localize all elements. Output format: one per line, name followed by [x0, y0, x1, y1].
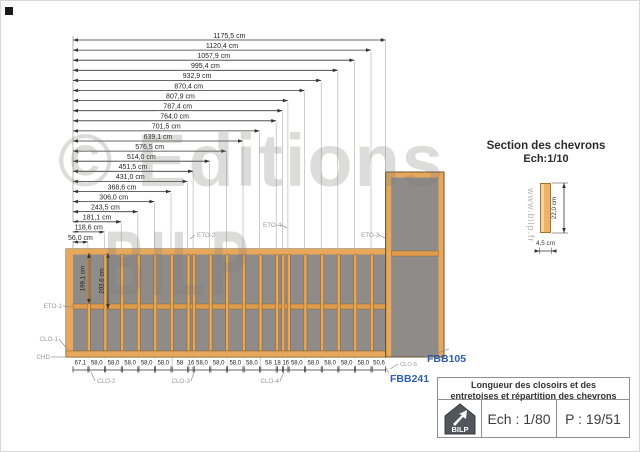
annotation-clo1: CLO-1 — [39, 336, 58, 343]
top-dimension-label: 514,0 cm — [127, 154, 156, 161]
top-dimension-label: 701,5 cm — [152, 124, 181, 131]
drawing-title-line1: Longueur des closoirs et des — [438, 380, 629, 391]
top-dimension-label: 56,0 cm — [68, 235, 93, 242]
top-dimension-label: 870,4 cm — [174, 83, 203, 90]
annotation-fbb241: FBB241 — [390, 373, 429, 385]
drawing-scale: Ech : 1/80 — [482, 400, 557, 438]
bilp-logo: BILP — [438, 400, 482, 438]
annotation-eto4: ETO-4 — [263, 222, 282, 229]
annotation-clo5: CLO-5 — [400, 362, 417, 368]
section-width-dim: 4,5 cm — [536, 240, 555, 247]
bottom-spacing-label: 58 — [177, 361, 184, 367]
bottom-spacing-label: 58,0 — [341, 361, 353, 367]
bottom-spacing-label: 58,0 — [308, 361, 320, 367]
bottom-spacing-label: 58,0 — [291, 361, 303, 367]
top-dimension-label: 764,0 cm — [160, 114, 189, 121]
title-block: Longueur des closoirs et des entretoises… — [437, 377, 630, 438]
annotation-eto3: ETO-3 — [361, 232, 380, 239]
drawing-page: 1175,5 cm1120,4 cm1057,9 cm995,4 cm932,9… — [0, 0, 640, 452]
bottom-spacing-label: 58,0 — [196, 361, 208, 367]
top-dimension-label: 451,5 cm — [119, 164, 148, 171]
bottom-spacing-label: 58,0 — [229, 361, 241, 367]
bottom-spacing-label: 58,0 — [357, 361, 369, 367]
chevron-section-detail: Section des chevrons Ech:1/10 — [455, 140, 637, 165]
bottom-spacing-label: 50,6 — [373, 361, 385, 367]
top-dimension-label: 576,5 cm — [135, 144, 164, 151]
top-dimension-label: 368,6 cm — [108, 184, 137, 191]
top-dimension-label: 639,1 cm — [144, 134, 173, 141]
bottom-spacing-label: 58 — [265, 361, 272, 367]
annotation-fbb105: FBB105 — [427, 353, 466, 365]
top-dimension-label: 1057,9 cm — [197, 53, 230, 60]
top-dimension-label: 1175,5 cm — [213, 33, 245, 40]
bilp-logo-icon: BILP — [444, 403, 476, 435]
bottom-spacing-label: 58,0 — [108, 361, 120, 367]
top-dimension-label: 118,6 cm — [75, 225, 103, 232]
annotation-chd: CHD — [36, 354, 50, 361]
bottom-spacing-label: 58,0 — [124, 361, 136, 367]
top-dimension-label: 932,9 cm — [183, 73, 212, 80]
website-watermark: www.bilp.fr — [526, 188, 536, 243]
page-number: P : 19/51 — [557, 400, 629, 438]
bottom-spacing-label: 58,0 — [141, 361, 153, 367]
annotation-clo3: CLO-3 — [171, 378, 190, 385]
panel-vertical-dim: 199,1 cm — [80, 266, 87, 291]
panel-vertical-dim: 203,6 cm — [99, 268, 106, 293]
bottom-spacing-label: 58,0 — [91, 361, 103, 367]
top-dimension-label: 1120,4 cm — [206, 43, 238, 50]
annotation-eto1: ETO-1 — [44, 303, 63, 310]
annotation-eto2: ETO-2 — [197, 232, 216, 239]
top-dimension-label: 787,4 cm — [163, 104, 192, 111]
svg-text:BILP: BILP — [451, 425, 468, 434]
top-dimension-label: 807,9 cm — [166, 93, 195, 100]
top-dimension-label: 431,0 cm — [116, 174, 145, 181]
annotation-clo4: CLO-4 — [260, 378, 279, 385]
bottom-spacing-label: 58,0 — [213, 361, 225, 367]
bottom-spacing-label: 58,0 — [324, 361, 336, 367]
bottom-spacing-label: 58,0 — [157, 361, 169, 367]
bottom-spacing-label: 16 — [282, 361, 289, 367]
bottom-spacing-label: 16 — [188, 361, 195, 367]
annotation-clo2: CLO-2 — [97, 378, 116, 385]
section-height-dim: 22,0 cm — [551, 197, 558, 219]
chevron-cross-section — [540, 183, 551, 233]
section-scale: Ech:1/10 — [455, 153, 637, 165]
top-dimension-label: 181,1 cm — [83, 215, 112, 222]
bottom-spacing-label: 58,0 — [246, 361, 258, 367]
bottom-spacing-label: 67,1 — [75, 361, 87, 367]
drawing-title: Longueur des closoirs et des entretoises… — [438, 378, 629, 400]
section-title: Section des chevrons — [455, 140, 637, 152]
top-dimension-label: 243,5 cm — [91, 205, 120, 212]
top-dimension-label: 306,0 cm — [99, 194, 128, 201]
top-dimension-label: 995,4 cm — [191, 63, 220, 70]
